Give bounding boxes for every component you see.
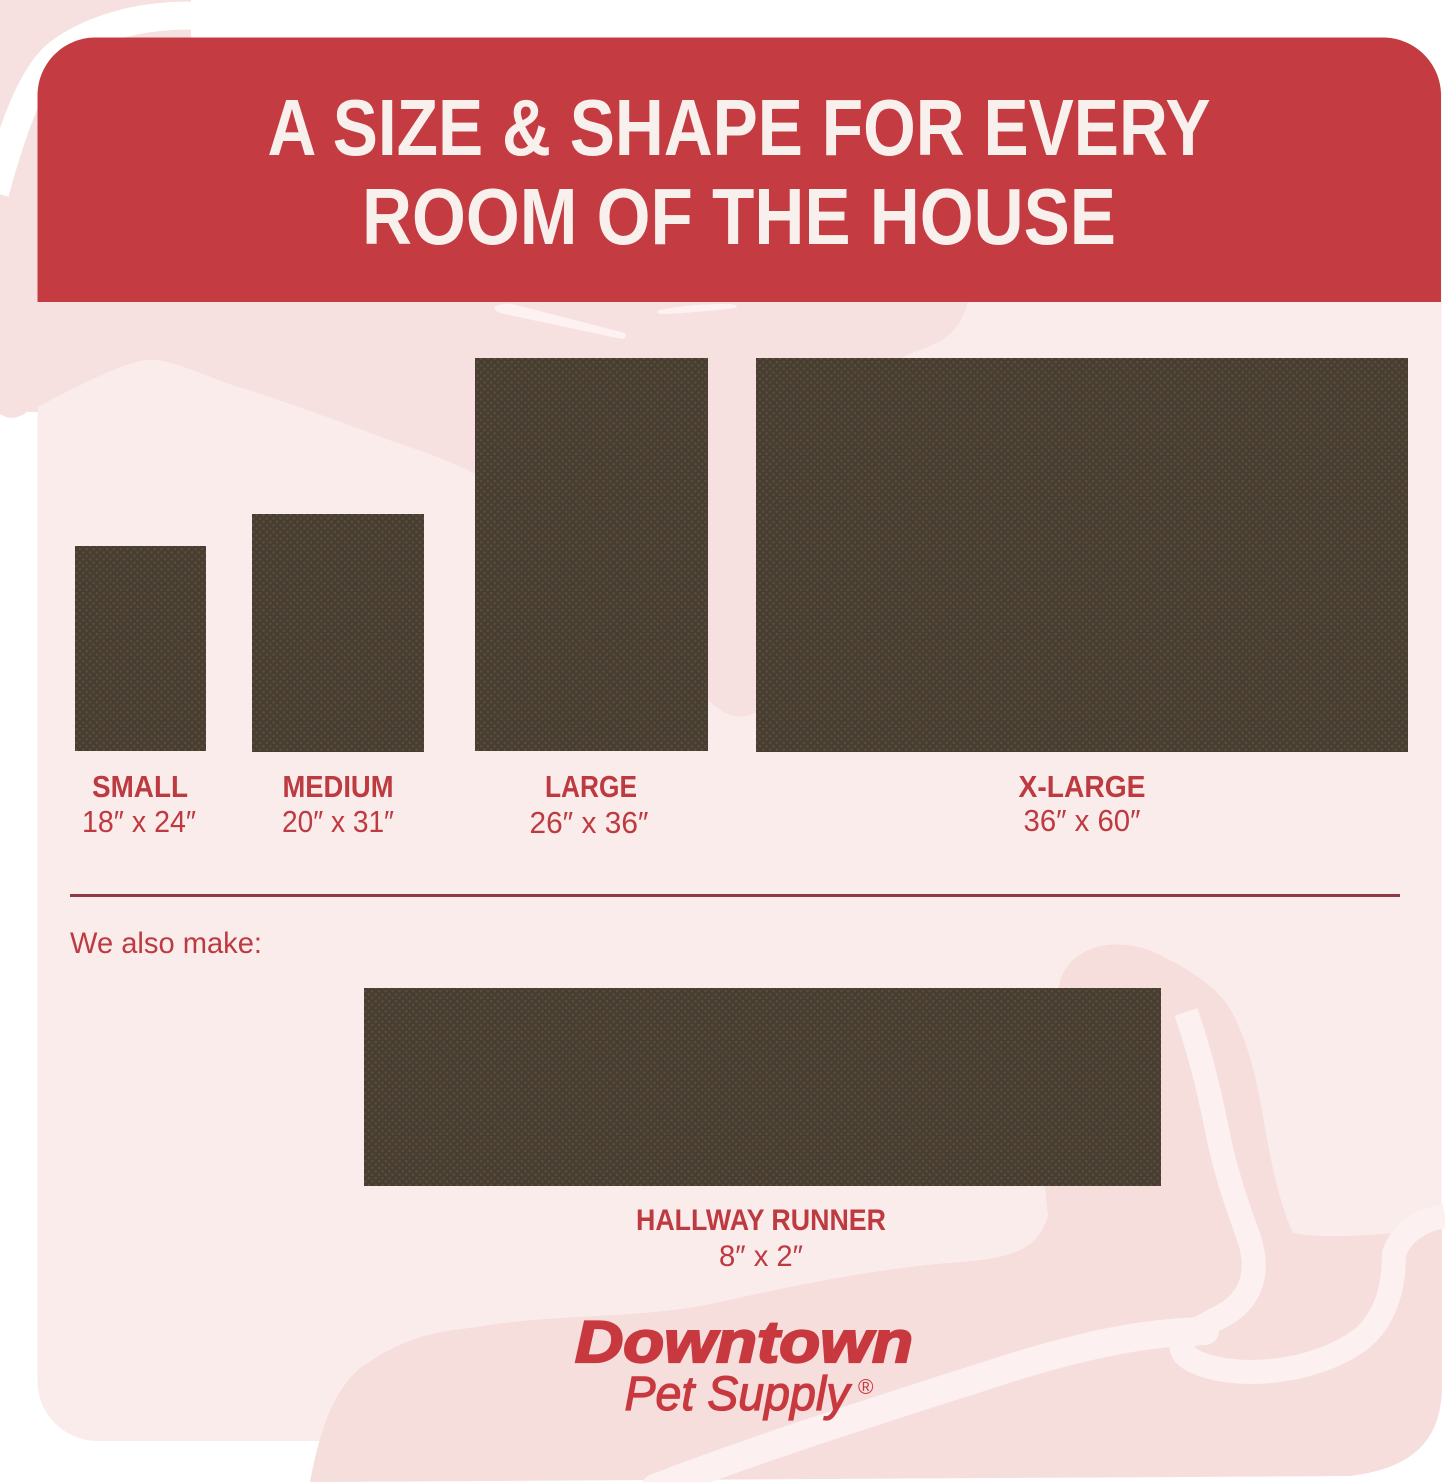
svg-text:Pet Supply: Pet Supply [625, 1368, 853, 1421]
svg-text:®: ® [858, 1376, 874, 1399]
svg-text:X-LARGE: X-LARGE [1019, 769, 1146, 804]
svg-text:20″ x 31″: 20″ x 31″ [282, 804, 394, 839]
svg-text:26″ x 36″: 26″ x 36″ [530, 805, 649, 840]
svg-text:MEDIUM: MEDIUM [283, 769, 394, 804]
svg-text:ROOM OF THE HOUSE: ROOM OF THE HOUSE [362, 172, 1116, 261]
svg-text:18″ x 24″: 18″ x 24″ [82, 804, 196, 839]
svg-text:We also make:: We also make: [70, 927, 262, 960]
svg-text:SMALL: SMALL [92, 769, 188, 804]
svg-text:LARGE: LARGE [545, 769, 637, 804]
svg-text:8″ x 2″: 8″ x 2″ [719, 1240, 803, 1273]
svg-text:36″ x 60″: 36″ x 60″ [1024, 803, 1141, 838]
svg-text:A SIZE & SHAPE FOR EVERY: A SIZE & SHAPE FOR EVERY [268, 83, 1211, 172]
svg-text:Downtown: Downtown [575, 1310, 913, 1375]
svg-text:HALLWAY RUNNER: HALLWAY RUNNER [636, 1204, 886, 1237]
